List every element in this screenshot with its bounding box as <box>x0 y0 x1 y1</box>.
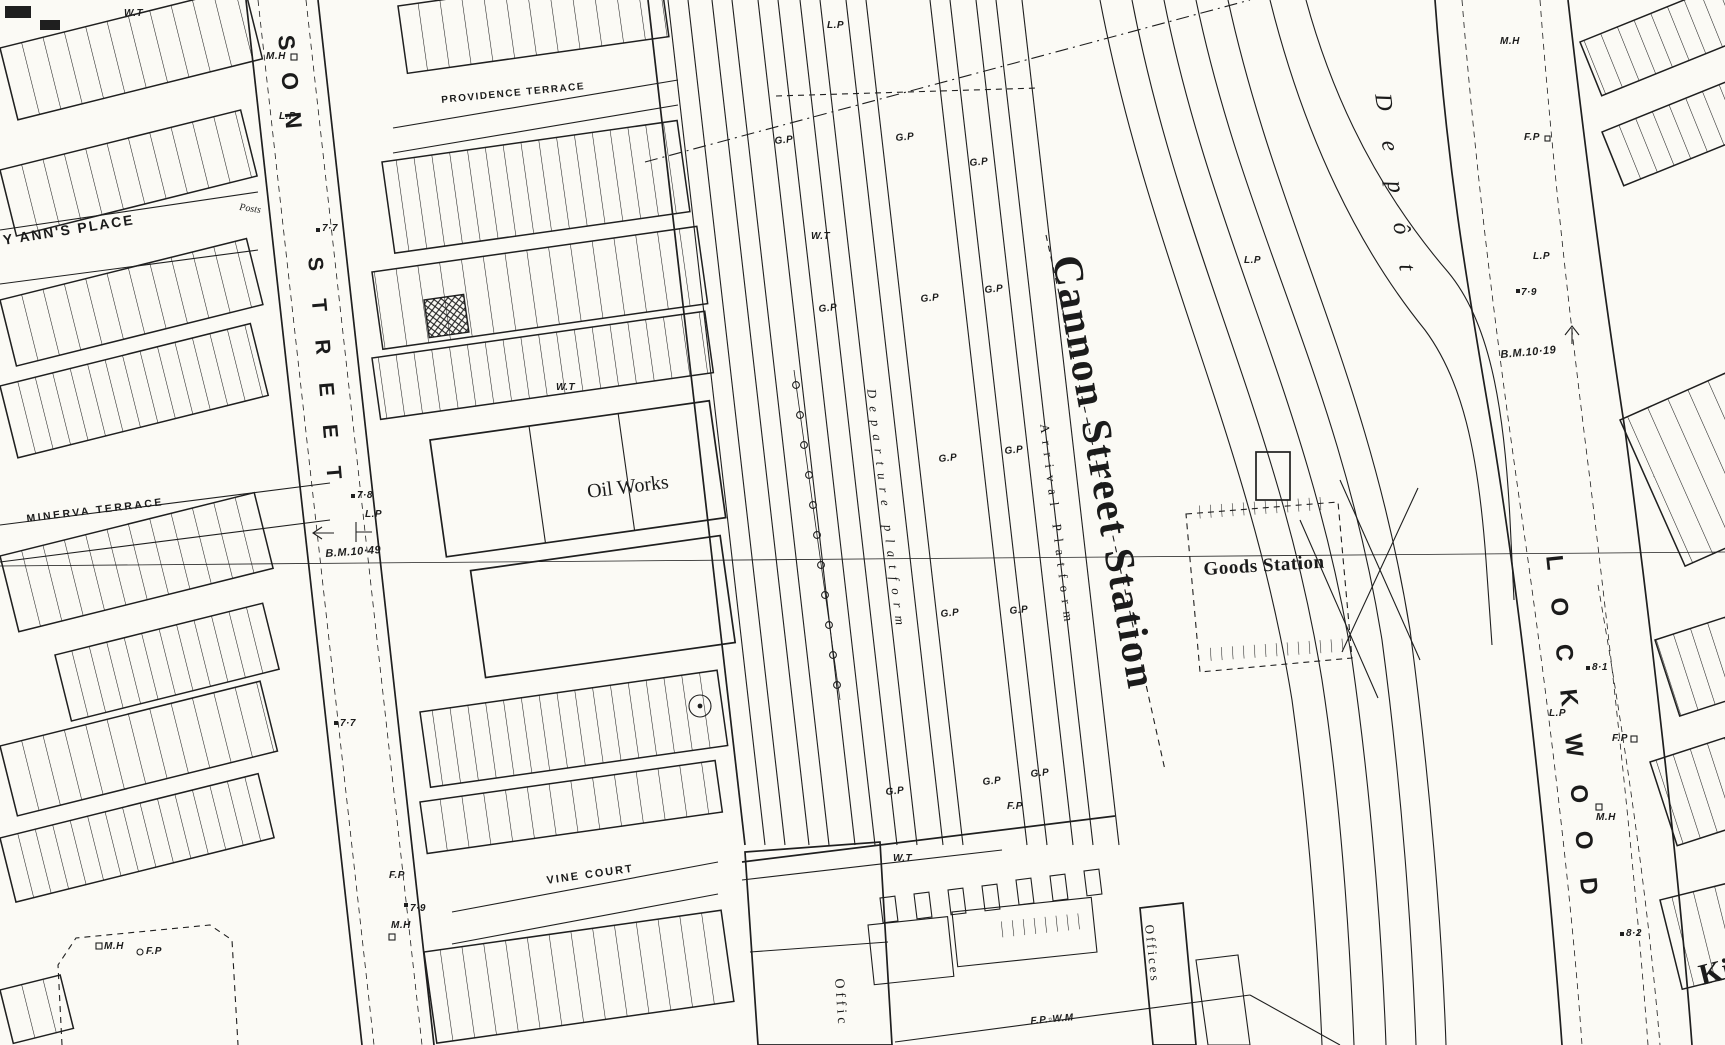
map-linework <box>0 0 1725 1045</box>
os-map-cannon-street-station: PROVIDENCE TERRACE Y ANN'S PLACE MINERVA… <box>0 0 1725 1045</box>
station-south-wall <box>742 816 1115 923</box>
marker-gp: G.P <box>982 775 1002 788</box>
marker-gp: G.P <box>895 131 915 144</box>
spot-height-82: 8·2 <box>1626 928 1642 939</box>
spot-height-79: 7·9 <box>410 903 426 914</box>
marker-gp: G.P <box>938 452 958 465</box>
marker-gp: G.P <box>984 283 1004 296</box>
spot-height-77: 7·7 <box>322 223 338 234</box>
terraces-left-mid <box>0 239 268 458</box>
spot-height-77: 7·7 <box>340 718 356 729</box>
spot-height-78: 7·8 <box>357 490 373 501</box>
terraces-left-lower <box>0 493 279 1045</box>
marker-fp: F.P <box>1612 733 1628 744</box>
marker-gp: G.P <box>1030 767 1050 780</box>
terraces-topleft <box>0 0 262 236</box>
marker-lp: L.P <box>1244 255 1261 266</box>
railway-curves-east <box>1100 0 1514 1045</box>
marker-lp: L.P <box>365 509 382 520</box>
marker-fp: F.P <box>1524 132 1540 143</box>
marker-gp: G.P <box>774 134 794 147</box>
marker-lp: L.P <box>827 20 844 31</box>
marker-gp: G.P <box>885 785 905 798</box>
marker-fp: F.P <box>146 946 162 957</box>
oil-works-block <box>420 401 743 854</box>
marker-lp: L.P <box>279 111 296 122</box>
providence-block <box>372 0 713 419</box>
marker-lp: L.P <box>1533 251 1550 262</box>
platform-fence-posts <box>793 370 841 700</box>
marker-mh: M.H <box>391 920 411 931</box>
spot-height-79: 7·9 <box>1521 287 1537 298</box>
marker-gp: G.P <box>1004 444 1024 457</box>
marker-wt: W.T <box>124 8 143 19</box>
marker-gp: G.P <box>920 292 940 305</box>
marker-gp: G.P <box>1009 604 1029 617</box>
marker-mh: M.H <box>266 51 286 62</box>
son-street-road <box>246 0 434 1045</box>
marker-gp: G.P <box>940 607 960 620</box>
marker-mh: M.H <box>1596 812 1616 823</box>
marker-wt: W.T <box>811 231 830 242</box>
marker-wt: W.T <box>556 382 575 393</box>
marker-gp: G.P <box>818 302 838 315</box>
spot-height-81: 8·1 <box>1592 662 1608 673</box>
vine-court-street <box>424 862 734 1043</box>
marker-wt: W.T <box>893 853 912 864</box>
marker-gp: G.P <box>969 156 989 169</box>
marker-mh: M.H <box>1500 36 1520 47</box>
place-label-offices-partial: Offic <box>831 978 848 1028</box>
marker-mh: M.H <box>104 941 124 952</box>
marker-lp: L.P <box>1549 708 1566 719</box>
marker-fp: F.P <box>389 870 405 881</box>
marker-fp: F.P <box>1007 801 1023 812</box>
